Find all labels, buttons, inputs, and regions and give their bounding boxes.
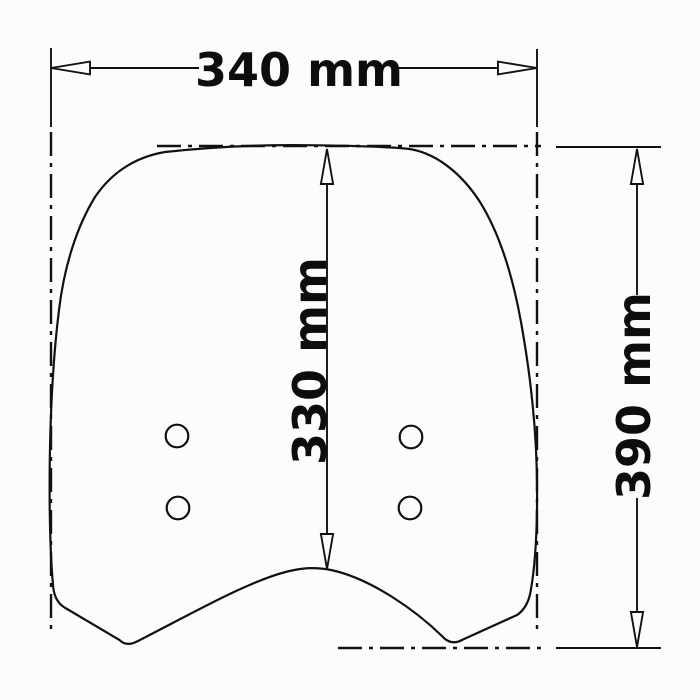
windscreen-technical-drawing: 340 mm 330 mm 390 mm <box>0 0 700 700</box>
dimension-total-height-390: 390 mm <box>556 147 661 648</box>
drawing-page: 340 mm 330 mm 390 mm <box>0 0 700 700</box>
arrowhead-up-icon <box>321 149 333 184</box>
width-dimension-label: 340 mm <box>195 43 403 97</box>
mounting-hole-left-lower <box>167 497 190 520</box>
arrowhead-up-icon <box>631 149 643 184</box>
mounting-hole-right-lower <box>399 497 422 520</box>
mounting-hole-right-upper <box>400 426 423 449</box>
total-height-dimension-label: 390 mm <box>607 292 661 500</box>
dimension-screen-height-330: 330 mm <box>283 149 337 569</box>
arrowhead-right-icon <box>498 62 537 75</box>
dimension-width-340: 340 mm <box>51 43 537 127</box>
arrowhead-down-icon <box>321 534 333 569</box>
arrowhead-left-icon <box>51 62 90 75</box>
mounting-hole-left-upper <box>166 425 189 448</box>
arrowhead-down-icon <box>631 612 643 647</box>
screen-height-dimension-label: 330 mm <box>283 257 337 465</box>
